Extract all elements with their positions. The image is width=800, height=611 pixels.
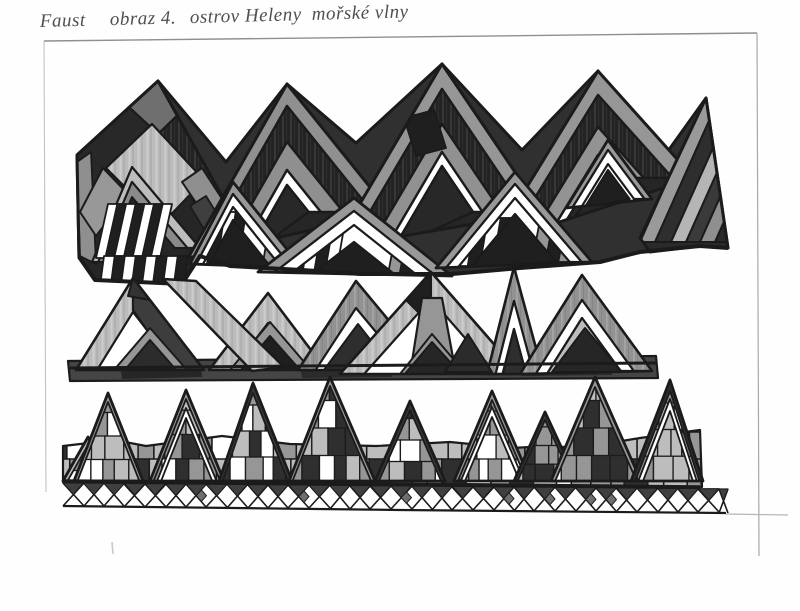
svg-text:mořské vlny: mořské vlny	[312, 1, 409, 25]
svg-text:Faust: Faust	[39, 10, 87, 32]
svg-text:ostrov Heleny: ostrov Heleny	[190, 4, 302, 28]
svg-text:obraz 4.: obraz 4.	[110, 7, 177, 30]
